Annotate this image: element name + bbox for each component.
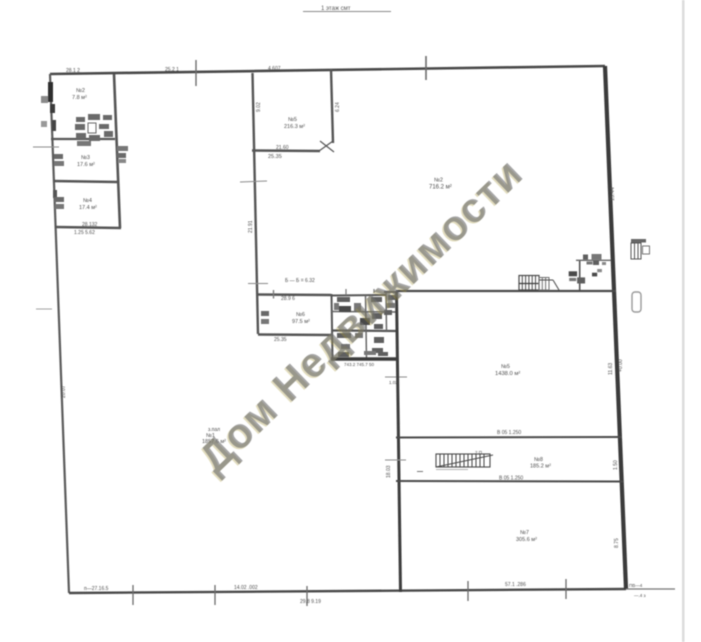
svg-text:1 этаж смт: 1 этаж смт [321, 6, 351, 12]
svg-text:9.02: 9.02 [256, 102, 262, 112]
svg-text:4.607: 4.607 [268, 66, 281, 72]
svg-text:№7: №7 [520, 530, 529, 536]
svg-text:21.60: 21.60 [276, 145, 289, 151]
svg-text:11.63: 11.63 [608, 363, 614, 375]
svg-text:743.2 745.7 50: 743.2 745.7 50 [344, 362, 375, 367]
svg-text:185.2 м²: 185.2 м² [530, 464, 551, 470]
svg-text:216.3 м²: 216.3 м² [284, 124, 305, 130]
svg-text:14.02 .002: 14.02 .002 [234, 585, 258, 591]
svg-text:ПВ—4: ПВ—4 [629, 583, 643, 588]
svg-text:1.25 5.62: 1.25 5.62 [74, 230, 95, 236]
svg-text:17.6 м²: 17.6 м² [77, 162, 95, 168]
svg-text:17.4 м²: 17.4 м² [79, 205, 97, 211]
svg-text:№5: №5 [288, 117, 297, 123]
svg-text:28.1 2: 28.1 2 [66, 68, 80, 74]
svg-text:№8: №8 [534, 457, 543, 463]
svg-text:25.2 1: 25.2 1 [165, 67, 179, 73]
svg-text:№3: №3 [81, 155, 90, 161]
svg-text:20.07: 20.07 [61, 385, 67, 398]
svg-text:21.91: 21.91 [248, 220, 254, 233]
svg-text:25.35: 25.35 [274, 337, 287, 343]
svg-text:—.4 з: —.4 з [634, 593, 646, 598]
svg-text:Б — Б = 6.32: Б — Б = 6.32 [285, 278, 315, 284]
svg-text:№2: №2 [76, 88, 85, 94]
svg-text:В 05 1.250: В 05 1.250 [497, 430, 521, 436]
svg-text:1.50: 1.50 [613, 460, 619, 470]
svg-text:2 П: 2 П [475, 450, 482, 455]
svg-text:№2: №2 [434, 178, 443, 184]
svg-text:57.1 .286: 57.1 .286 [505, 582, 526, 588]
svg-text:7.8 м²: 7.8 м² [72, 95, 87, 101]
svg-text:№5: №5 [501, 364, 510, 370]
svg-text:п—27.16.5: п—27.16.5 [84, 586, 109, 592]
svg-text:В 05 1.250: В 05 1.250 [499, 476, 523, 482]
svg-text:№4: №4 [83, 198, 92, 204]
svg-text:716.2 м²: 716.2 м² [429, 185, 452, 191]
svg-text:29.8 9.19: 29.8 9.19 [300, 599, 321, 605]
svg-text:97.5 м²: 97.5 м² [292, 319, 310, 325]
svg-text:1438.0 м²: 1438.0 м² [495, 371, 520, 377]
svg-text:25.35: 25.35 [268, 154, 282, 160]
svg-text:6.24: 6.24 [335, 102, 341, 112]
svg-text:8.75: 8.75 [614, 538, 620, 548]
svg-text:15.44: 15.44 [610, 187, 616, 201]
svg-text:18.03: 18.03 [386, 465, 392, 478]
svg-text:Дом Недвижимости: Дом Недвижимости [190, 149, 532, 482]
svg-text:28.132: 28.132 [82, 222, 98, 228]
svg-text:28.9 6: 28.9 6 [281, 296, 295, 302]
svg-text:305.6 м²: 305.6 м² [516, 537, 537, 543]
svg-text:№6: №6 [296, 312, 305, 318]
svg-text:+0.00: +0.00 [618, 359, 624, 372]
